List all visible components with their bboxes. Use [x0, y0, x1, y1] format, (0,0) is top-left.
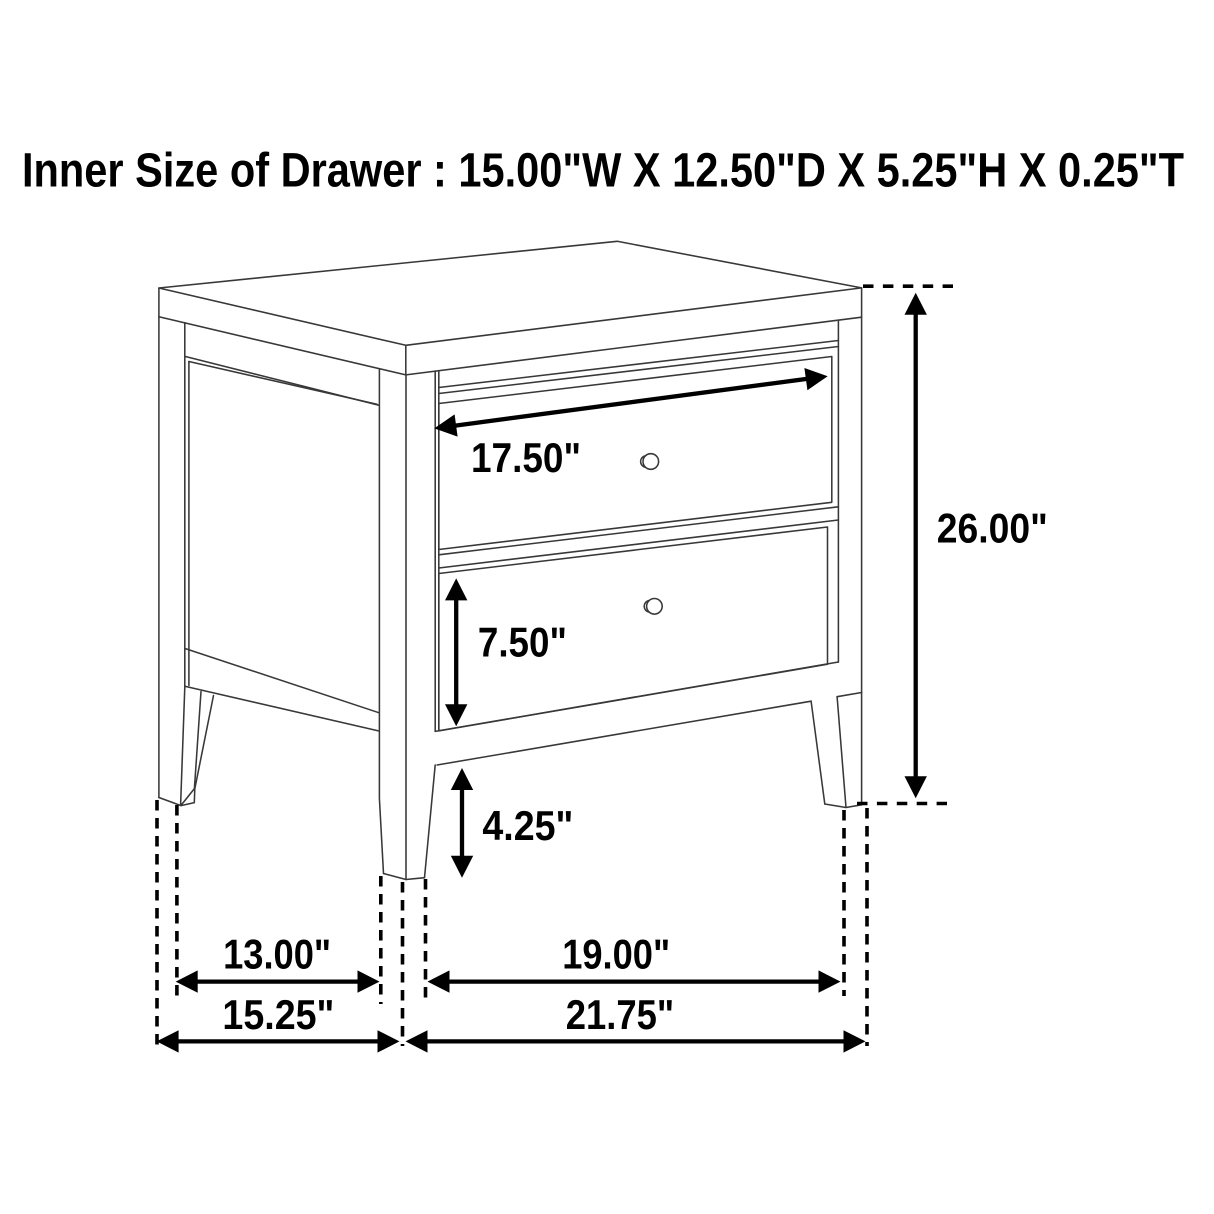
svg-text:7.50": 7.50" — [478, 619, 567, 666]
svg-text:13.00": 13.00" — [223, 931, 331, 978]
svg-text:15.25": 15.25" — [222, 991, 334, 1038]
svg-text:4.25": 4.25" — [482, 802, 573, 849]
svg-text:17.50": 17.50" — [471, 434, 581, 481]
svg-text:19.00": 19.00" — [562, 931, 670, 978]
svg-text:21.75": 21.75" — [566, 991, 675, 1038]
svg-text:Inner Size of Drawer : 15.00"W: Inner Size of Drawer : 15.00"W X 12.50"D… — [22, 145, 1184, 198]
svg-text:26.00": 26.00" — [937, 505, 1048, 552]
